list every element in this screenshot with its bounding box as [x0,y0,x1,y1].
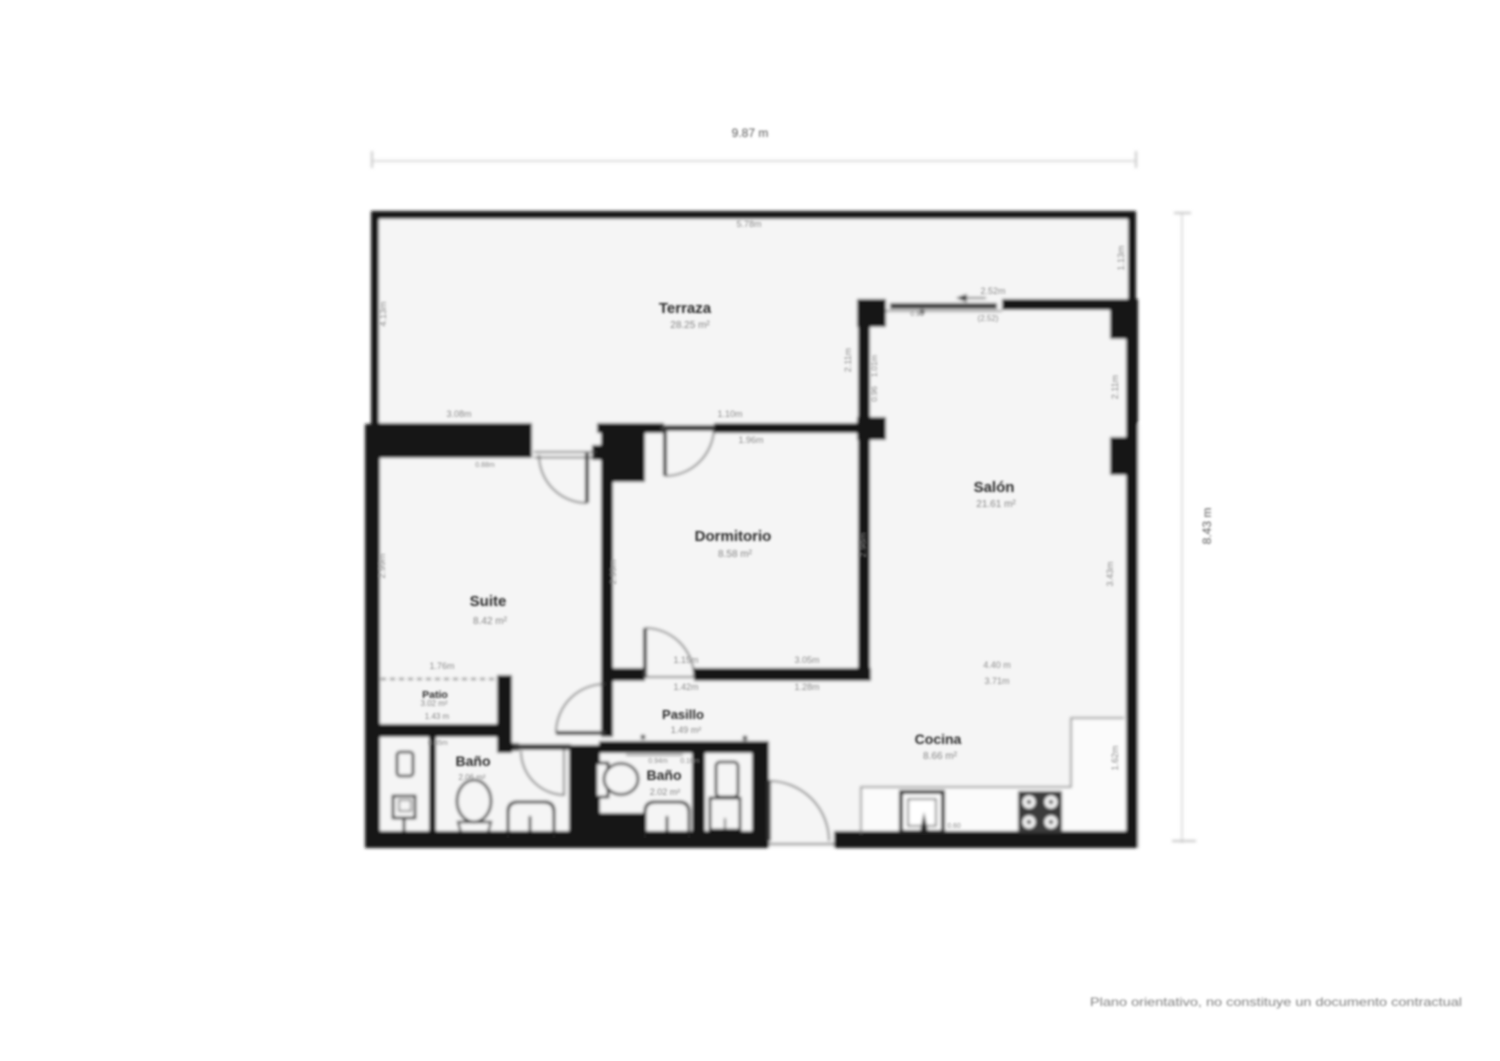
svg-text:8.58 m²: 8.58 m² [718,549,753,560]
svg-text:3.02 m²: 3.02 m² [420,699,447,708]
svg-text:0.96: 0.96 [870,386,879,402]
svg-text:1.10m: 1.10m [717,409,742,419]
svg-text:2.11m: 2.11m [1110,375,1120,399]
svg-text:2.98m: 2.98m [858,532,868,557]
svg-text:0.88m: 0.88m [475,462,495,469]
svg-text:8.42 m²: 8.42 m² [473,616,508,627]
svg-text:4.13m: 4.13m [378,301,388,326]
svg-text:1.43 m: 1.43 m [425,712,450,721]
svg-text:1.28m: 1.28m [794,682,819,692]
svg-text:28.25 m²: 28.25 m² [670,320,710,331]
svg-text:2.06 m²: 2.06 m² [458,773,485,782]
svg-text:1.15m: 1.15m [673,655,698,665]
svg-text:Terraza: Terraza [659,300,712,317]
svg-text:(2.52): (2.52) [978,314,999,323]
svg-text:1.42m: 1.42m [673,682,698,692]
svg-text:Dormitorio: Dormitorio [695,528,772,545]
svg-text:1.62m: 1.62m [1110,745,1120,770]
svg-text:Pasillo: Pasillo [662,707,704,722]
svg-text:Salón: Salón [974,479,1015,496]
svg-text:21.61 m²: 21.61 m² [976,499,1016,510]
svg-text:9.87 m: 9.87 m [732,126,769,140]
svg-text:3.71m: 3.71m [984,676,1009,686]
svg-text:2.52m: 2.52m [980,286,1005,296]
svg-text:Plano orientativo, no constitu: Plano orientativo, no constituye un docu… [1090,995,1462,1009]
svg-text:Cocina: Cocina [915,731,962,747]
svg-text:8.66 m²: 8.66 m² [923,751,958,762]
svg-text:2.99m: 2.99m [377,553,387,578]
svg-text:1.76m: 1.76m [429,661,454,671]
svg-text:5.78m: 5.78m [736,219,761,229]
svg-text:0.65m: 0.65m [428,740,448,747]
svg-text:3.43m: 3.43m [1105,561,1115,586]
svg-text:4.40 m: 4.40 m [983,660,1011,670]
svg-text:8.43 m: 8.43 m [1200,508,1214,545]
svg-text:Baño: Baño [647,767,682,783]
svg-text:1.01m: 1.01m [870,355,879,378]
svg-text:1.13m: 1.13m [1116,245,1126,270]
svg-text:0.90: 0.90 [910,311,924,318]
svg-text:3.08m: 3.08m [446,409,471,419]
svg-text:2.99m: 2.99m [608,559,618,584]
svg-text:2.11m: 2.11m [843,348,853,372]
svg-text:2.02 m²: 2.02 m² [650,787,681,797]
svg-text:0.60: 0.60 [947,823,961,830]
svg-text:0.16m: 0.16m [680,758,700,765]
svg-text:Suite: Suite [470,593,507,610]
svg-text:1.96m: 1.96m [738,435,763,445]
svg-text:3.05m: 3.05m [794,655,819,665]
svg-text:Baño: Baño [456,753,491,769]
svg-text:1.49 m²: 1.49 m² [671,725,702,735]
svg-text:0.94m: 0.94m [648,758,668,765]
